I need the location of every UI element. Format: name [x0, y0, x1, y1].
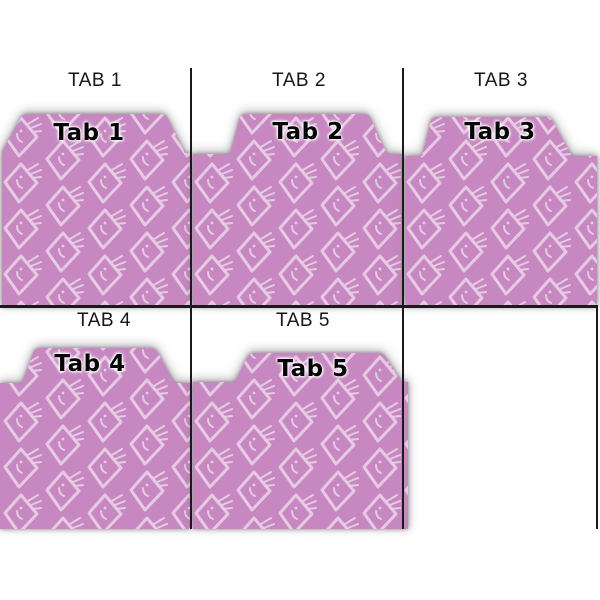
section-label-tab4: TAB 4: [77, 311, 131, 330]
grid-line-vertical-right: [596, 307, 598, 529]
tab-face-text-tab1: Tab 1: [53, 120, 124, 146]
tab-face-text-tab5: Tab 5: [277, 356, 348, 382]
folder-preview-tab3: [403, 68, 597, 307]
grid-line-horizontal: [0, 305, 598, 308]
tab-face-text-tab2: Tab 2: [272, 119, 343, 145]
folder-shape-tab3: [406, 117, 597, 307]
section-label-tab3: TAB 3: [474, 71, 528, 90]
grid-line-vertical-middle: [402, 68, 404, 529]
section-label-tab2: TAB 2: [272, 71, 326, 90]
folder-preview-tab2: [191, 68, 403, 307]
section-label-tab1: TAB 1: [68, 71, 122, 90]
folder-preview-tab5: [191, 307, 408, 529]
grid-line-vertical-left: [190, 68, 192, 529]
folder-preview-tab1: [0, 68, 191, 307]
tab-face-text-tab3: Tab 3: [464, 119, 535, 145]
tab-face-text-tab4: Tab 4: [54, 351, 125, 377]
folder-preview-tab4: [0, 307, 191, 529]
tab-divider-preview-sheet: TAB 1 TAB 2 TAB 3 TAB 4 TAB 5: [0, 0, 600, 600]
section-label-tab5: TAB 5: [276, 311, 330, 330]
